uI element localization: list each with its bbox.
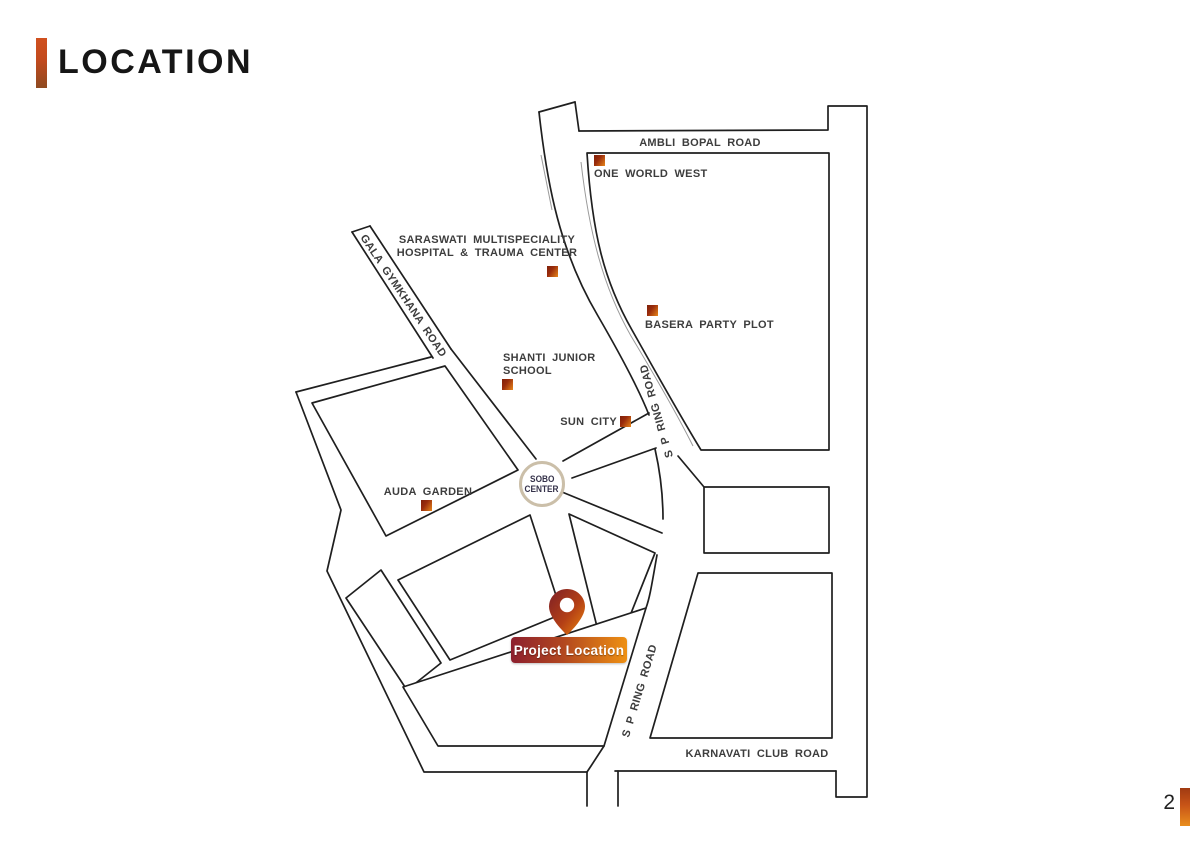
sobo-line1: SOBO — [530, 474, 554, 484]
page-accent-bar — [1180, 788, 1190, 826]
location-pin-icon — [548, 588, 586, 636]
poi-marker-sun-city — [620, 416, 631, 427]
road-sp-ring-east-upper — [575, 102, 579, 131]
road-sp-ring-top-cap — [539, 102, 575, 112]
poi-marker-one-world-west — [594, 155, 605, 166]
poi-marker-saraswati-hospital — [547, 266, 558, 277]
place-label-saraswati-hospital: SARASWATI MULTISPECIALITY HOSPITAL & TRA… — [397, 234, 577, 260]
road-network — [296, 102, 867, 806]
poi-marker-auda-garden — [421, 500, 432, 511]
block-karnavati — [650, 573, 832, 738]
shanti-line2: SCHOOL — [503, 365, 595, 378]
block-middle-right — [704, 487, 829, 553]
road-label-karnavati-club: KARNAVATI CLUB ROAD — [685, 748, 828, 760]
project-location-badge: Project Location — [511, 637, 627, 663]
road-gala-cap — [352, 226, 370, 232]
place-label-basera-party-plot: BASERA PARTY PLOT — [645, 319, 774, 331]
place-label-auda-garden: AUDA GARDEN — [384, 486, 472, 498]
saraswati-line1: SARASWATI MULTISPECIALITY — [397, 234, 577, 247]
block-auda-garden — [312, 366, 518, 536]
road-label-ambli-bopal: AMBLI BOPAL ROAD — [639, 137, 761, 149]
page-number: 2 — [1125, 791, 1175, 815]
place-label-shanti-junior-school: SHANTI JUNIOR SCHOOL — [503, 352, 595, 378]
poi-marker-basera-party-plot — [647, 305, 658, 316]
place-label-sun-city: SUN CITY — [560, 416, 617, 428]
block-top-right — [587, 153, 829, 450]
saraswati-line2: HOSPITAL & TRAUMA CENTER — [397, 247, 577, 260]
road-suncity-lower — [572, 448, 656, 478]
shanti-line1: SHANTI JUNIOR — [503, 352, 595, 365]
street-corner-diagonal — [678, 456, 704, 487]
sobo-line2: CENTER — [525, 484, 559, 494]
sobo-center-roundabout: SOBO CENTER — [519, 461, 565, 507]
road-sp-ring-west-curve — [587, 746, 604, 772]
project-location-label: Project Location — [514, 643, 625, 658]
poi-marker-shanti-junior-school — [502, 379, 513, 390]
place-label-one-world-west: ONE WORLD WEST — [594, 168, 707, 180]
road-sp-ring-west-mid1 — [655, 449, 663, 519]
